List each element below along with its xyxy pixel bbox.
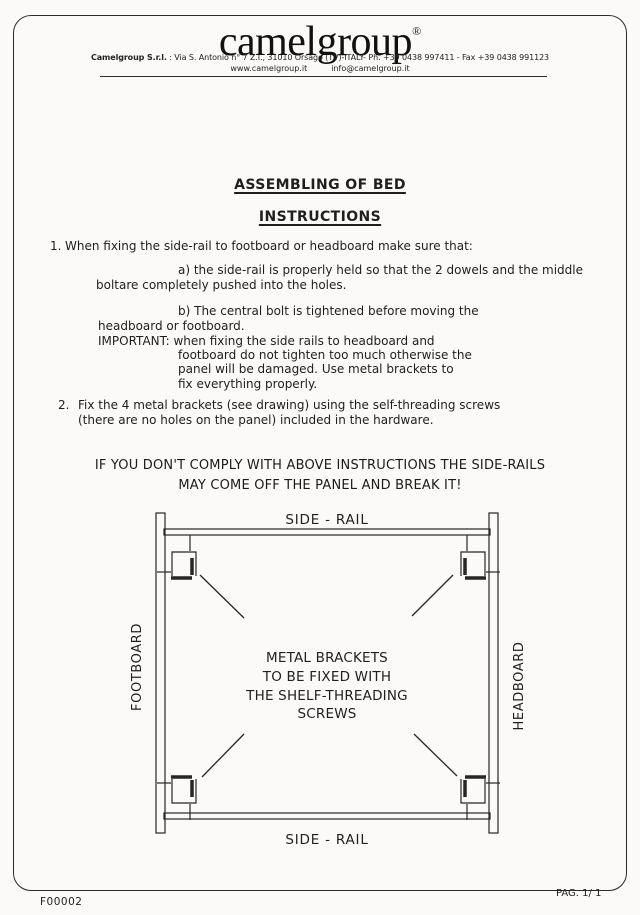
instruction-2-line1: Fix the 4 metal brackets (see drawing) u… <box>78 398 500 412</box>
headboard-label: HEADBOARD <box>512 642 527 731</box>
diagram-note-line1: METAL BRACKETS <box>266 650 388 666</box>
instruction-1-text: When fixing the side-rail to footboard o… <box>65 239 473 253</box>
side-rail-bottom-bar <box>164 813 490 819</box>
diagram-note-line4: SCREWS <box>297 706 356 722</box>
instruction-2-line2: (there are no holes on the panel) includ… <box>78 413 434 427</box>
pointer-line-top-left <box>200 575 244 618</box>
warning-line2: MAY COME OFF THE PANEL AND BREAK IT! <box>0 476 640 496</box>
side-rail-top-bar <box>164 529 490 535</box>
warning-notice: IF YOU DON'T COMPLY WITH ABOVE INSTRUCTI… <box>0 456 640 495</box>
company-email: info@camelgroup.it <box>331 64 409 73</box>
header-divider <box>100 76 547 77</box>
headboard-bar <box>489 513 498 833</box>
company-website: www.camelgroup.it <box>230 64 307 73</box>
scanned-instruction-sheet: { "header": { "logo": "camelgroup", "reg… <box>0 0 640 915</box>
pointer-line-top-right <box>412 575 453 616</box>
bed-assembly-diagram: SIDE - RAIL SIDE - RAIL FOOTBOARD HEADBO… <box>0 505 640 860</box>
doc-code: F00002 <box>40 896 82 908</box>
side-rail-bottom-label: SIDE - RAIL <box>285 832 368 848</box>
registered-mark-icon: ® <box>412 24 421 38</box>
instruction-1b-line5: panel will be damaged. Use metal bracket… <box>178 362 454 376</box>
diagram-note-line2: TO BE FIXED WITH <box>262 669 391 685</box>
instruction-1b-line2: headboard or footboard. <box>98 319 245 333</box>
company-address: Camelgroup S.r.l. : Via S. Antonio n° 7 … <box>0 53 640 62</box>
pointer-line-bottom-right <box>414 734 457 776</box>
doc-subtitle: INSTRUCTIONS <box>0 209 640 225</box>
instruction-1b-line1: b) The central bolt is tightened before … <box>178 304 479 318</box>
bracket-icon-top-right <box>461 535 500 578</box>
instruction-2-number: 2. <box>58 398 69 412</box>
warning-line1: IF YOU DON'T COMPLY WITH ABOVE INSTRUCTI… <box>0 456 640 476</box>
instruction-1b-line4: footboard do not tighten too much otherw… <box>178 348 472 362</box>
company-contacts: www.camelgroup.it info@camelgroup.it <box>0 64 640 73</box>
bracket-icon-top-left <box>157 535 196 578</box>
instruction-1b-line3: IMPORTANT: when fixing the side rails to… <box>98 334 435 348</box>
footboard-bar <box>156 513 165 833</box>
instruction-1a-line2: boltare completely pushed into the holes… <box>96 278 346 292</box>
footboard-label: FOOTBOARD <box>130 623 145 711</box>
company-name: Camelgroup S.r.l. <box>91 53 167 62</box>
page-number: PAG. 1/ 1 <box>556 888 601 899</box>
pointer-line-bottom-left <box>202 734 244 777</box>
diagram-note-line3: THE SHELF-THREADING <box>245 688 408 704</box>
instruction-1-number: 1. <box>50 239 61 253</box>
instruction-1b-line6: fix everything properly. <box>178 377 317 391</box>
instruction-1a-line1: a) the side-rail is properly held so tha… <box>178 263 583 277</box>
side-rail-top-label: SIDE - RAIL <box>285 512 368 528</box>
company-address-text: : Via S. Antonio n° 7 Z.I., 31010 Orsago… <box>169 53 549 62</box>
doc-title: ASSEMBLING OF BED <box>0 177 640 193</box>
